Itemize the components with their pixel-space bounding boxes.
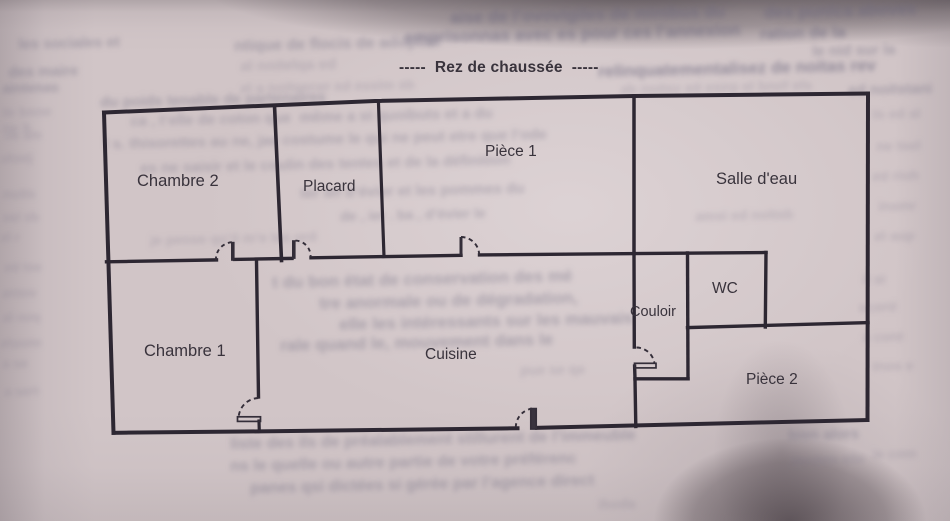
svg-text:Chambre 1: Chambre 1 — [144, 342, 226, 360]
svg-text:Chambre 2: Chambre 2 — [137, 172, 219, 190]
svg-text:Couloir: Couloir — [630, 304, 676, 320]
svg-text:Pièce 1: Pièce 1 — [485, 143, 537, 160]
svg-text:WC: WC — [712, 280, 738, 297]
svg-text:----- Rez de chaussée -----: ----- Rez de chaussée ----- — [399, 59, 599, 76]
svg-text:Placard: Placard — [303, 178, 356, 195]
svg-text:Salle d'eau: Salle d'eau — [716, 170, 797, 188]
svg-text:Pièce 2: Pièce 2 — [746, 371, 798, 388]
svg-text:Cuisine: Cuisine — [425, 346, 477, 363]
